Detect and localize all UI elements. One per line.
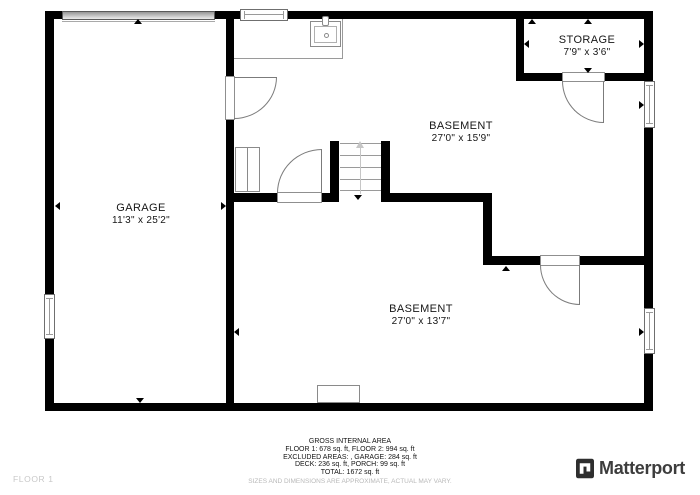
window-right-upper: [644, 81, 655, 128]
stair-direction-line: [360, 147, 361, 194]
dimension-tick: [639, 328, 644, 336]
dimension-tick: [639, 101, 644, 109]
dimension-tick: [639, 40, 644, 48]
window-right-lower: [644, 308, 655, 354]
window-pane: [649, 85, 651, 124]
window-cap: [646, 312, 653, 313]
dimension-tick: [584, 68, 592, 73]
window-cap: [46, 334, 53, 335]
room-dimensions: 7'9" x 3'6": [559, 47, 615, 58]
brand-logo: Matterport: [576, 458, 685, 479]
window-cap: [244, 11, 245, 19]
wall-step-vertical: [483, 193, 492, 265]
room-name: STORAGE: [559, 34, 615, 46]
disclaimer: SIZES AND DIMENSIONS ARE APPROXIMATE, AC…: [0, 478, 700, 486]
area-summary-floors: FLOOR 1: 678 sq. ft, FLOOR 2: 994 sq. ft: [0, 446, 700, 454]
wall-stair-left: [330, 141, 339, 202]
room-label-basement-lower: BASEMENT 27'0" x 13'7": [389, 303, 453, 327]
wall-storage-bottom-left: [516, 73, 562, 81]
room-name: GARAGE: [112, 202, 170, 214]
wall-lower-divider-left: [483, 256, 540, 265]
window-pane: [49, 298, 51, 335]
window-cap: [283, 11, 284, 19]
wall-garage-right-upper: [226, 11, 234, 77]
dimension-tick: [55, 202, 60, 210]
dimension-tick: [134, 19, 142, 24]
window-garage-left: [44, 294, 55, 339]
hearth: [317, 385, 360, 403]
stair-up-arrow-icon: [356, 141, 364, 148]
door-frame-basement-divider: [277, 192, 322, 203]
floor-plan: GARAGE 11'3" x 25'2" BASEMENT 27'0" x 15…: [0, 0, 700, 430]
dimension-tick: [354, 195, 362, 200]
wall-basement-divider-a: [226, 193, 277, 202]
window-cap: [646, 123, 653, 124]
matterport-logo-icon: [576, 458, 594, 479]
wall-bottom: [45, 403, 653, 411]
wall-storage-left: [516, 11, 524, 81]
utility-box: [247, 147, 260, 192]
wall-garage-right-lower: [226, 119, 234, 403]
window-pane: [649, 312, 651, 350]
door-swing-arc: [562, 81, 604, 123]
window-cap: [646, 349, 653, 350]
dimension-tick: [528, 19, 536, 24]
area-summary-title: GROSS INTERNAL AREA: [0, 438, 700, 446]
door-swing-arc: [234, 77, 277, 119]
floor-label: FLOOR 1: [13, 474, 54, 484]
dimension-tick: [221, 202, 226, 210]
room-dimensions: 27'0" x 15'9": [429, 133, 493, 144]
wall-storage-bottom-right: [605, 73, 653, 81]
room-label-basement-upper: BASEMENT 27'0" x 15'9": [429, 120, 493, 144]
window-cap: [46, 298, 53, 299]
door-swing-arc: [540, 265, 580, 305]
room-dimensions: 11'3" x 25'2": [112, 215, 170, 226]
dimension-tick: [234, 328, 239, 336]
sink-faucet-icon: [322, 16, 329, 26]
dimension-tick: [136, 398, 144, 403]
room-label-garage: GARAGE 11'3" x 25'2": [112, 202, 170, 226]
sink-drain-icon: [324, 33, 329, 38]
wall-basement-divider-c: [381, 193, 492, 202]
door-swing-arc: [277, 149, 322, 193]
room-name: BASEMENT: [429, 120, 493, 132]
wall-left: [45, 11, 54, 411]
window-pane: [244, 14, 284, 16]
room-name: BASEMENT: [389, 303, 453, 315]
dimension-tick: [584, 19, 592, 24]
room-dimensions: 27'0" x 13'7": [389, 316, 453, 327]
dimension-tick: [524, 40, 529, 48]
room-label-storage: STORAGE 7'9" x 3'6": [559, 34, 615, 58]
window-cap: [646, 85, 653, 86]
dimension-tick: [502, 266, 510, 271]
wall-lower-divider-right: [580, 256, 653, 265]
brand-name: Matterport: [599, 458, 685, 479]
wall-stair-right: [381, 141, 390, 202]
